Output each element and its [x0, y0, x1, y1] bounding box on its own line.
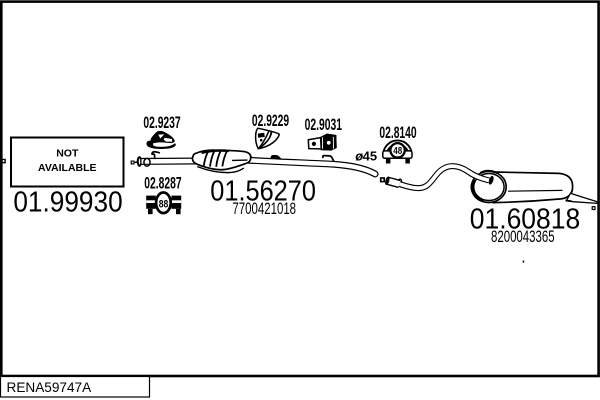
svg-text:02.8287: 02.8287 [144, 173, 182, 192]
svg-text:8200043365: 8200043365 [491, 227, 555, 245]
svg-text:7700421018: 7700421018 [232, 199, 296, 217]
svg-text:01.99930: 01.99930 [13, 185, 122, 218]
svg-text:02.9031: 02.9031 [305, 115, 343, 134]
svg-text:RENA59747A: RENA59747A [7, 380, 93, 395]
svg-text:45: 45 [363, 149, 377, 164]
svg-text:02.8140: 02.8140 [379, 122, 417, 141]
svg-text:02.9229: 02.9229 [252, 110, 290, 129]
svg-text:88: 88 [159, 198, 169, 210]
svg-text:NOT: NOT [56, 148, 79, 160]
svg-text:02.9237: 02.9237 [143, 112, 181, 131]
svg-text:48: 48 [393, 145, 402, 156]
svg-text:AVAILABLE: AVAILABLE [38, 162, 97, 174]
